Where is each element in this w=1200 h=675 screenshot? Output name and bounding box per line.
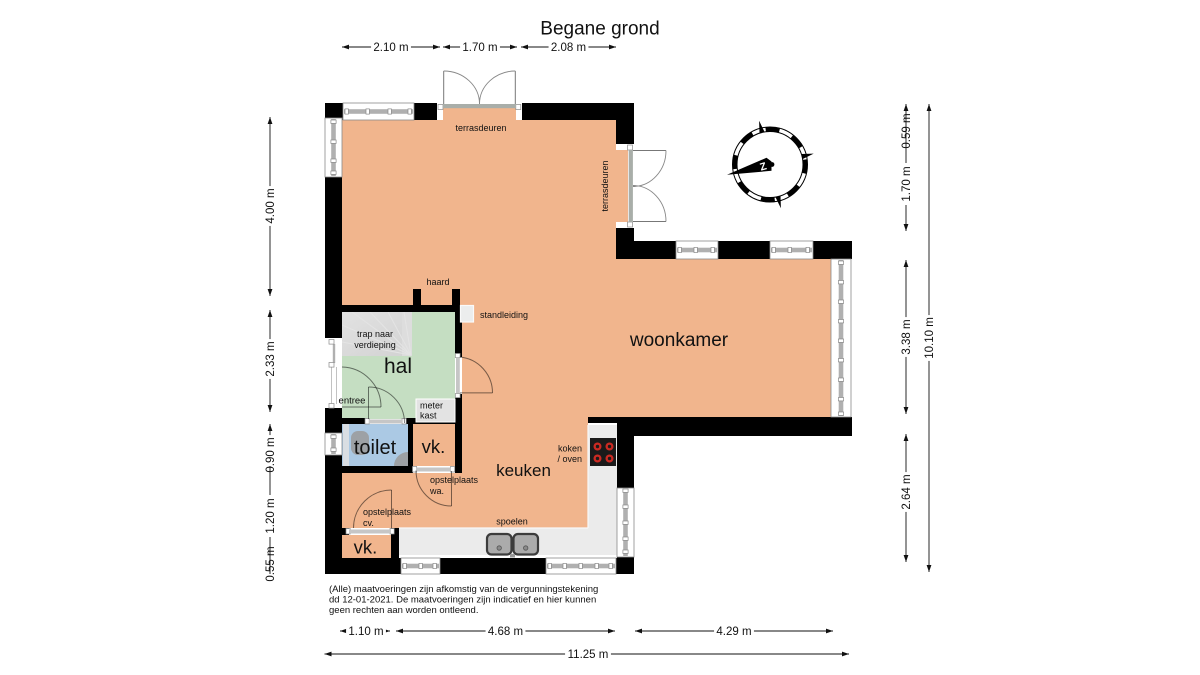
- svg-text:trap naar: trap naar: [357, 329, 393, 339]
- svg-text:verdieping: verdieping: [354, 340, 396, 350]
- svg-text:terrasdeuren: terrasdeuren: [455, 123, 506, 133]
- svg-text:0.90 m: 0.90 m: [265, 437, 277, 472]
- svg-text:woonkamer: woonkamer: [629, 330, 729, 351]
- svg-text:wa.: wa.: [429, 486, 444, 496]
- svg-text:entree: entree: [339, 396, 366, 407]
- svg-text:vk.: vk.: [422, 436, 446, 457]
- svg-text:1.20 m: 1.20 m: [265, 498, 277, 533]
- svg-text:3.38 m: 3.38 m: [901, 319, 913, 354]
- svg-text:1.10 m: 1.10 m: [348, 626, 383, 638]
- svg-text:spoelen: spoelen: [496, 517, 528, 527]
- svg-text:koken: koken: [558, 444, 582, 454]
- svg-text:cv.: cv.: [363, 518, 374, 528]
- svg-text:(Alle) maatvoeringen zijn afko: (Alle) maatvoeringen zijn afkomstig van …: [329, 584, 598, 595]
- svg-text:keuken: keuken: [496, 461, 551, 480]
- svg-text:4.68 m: 4.68 m: [488, 626, 523, 638]
- svg-text:4.29 m: 4.29 m: [716, 626, 751, 638]
- svg-text:standleiding: standleiding: [480, 310, 528, 320]
- svg-text:opstelplaats: opstelplaats: [430, 475, 479, 485]
- svg-text:Begane grond: Begane grond: [540, 19, 659, 40]
- svg-text:geen rechten aan worden ontlee: geen rechten aan worden ontleend.: [329, 605, 478, 616]
- svg-text:vk.: vk.: [354, 537, 378, 558]
- svg-text:haard: haard: [426, 277, 449, 287]
- svg-text:meter: meter: [420, 401, 443, 411]
- svg-text:11.25 m: 11.25 m: [568, 649, 609, 661]
- svg-text:opstelplaats: opstelplaats: [363, 507, 412, 517]
- svg-text:2.64 m: 2.64 m: [901, 474, 913, 509]
- svg-text:1.70 m: 1.70 m: [901, 166, 913, 201]
- svg-text:dd 12-01-2021. De maatvoeringe: dd 12-01-2021. De maatvoeringen zijn ind…: [329, 595, 596, 606]
- svg-text:2.08 m: 2.08 m: [551, 42, 586, 54]
- svg-text:2.10 m: 2.10 m: [373, 42, 408, 54]
- svg-text:toilet: toilet: [354, 437, 397, 459]
- svg-text:terrasdeuren: terrasdeuren: [600, 160, 610, 211]
- svg-text:4.00 m: 4.00 m: [265, 188, 277, 223]
- svg-text:10.10 m: 10.10 m: [924, 317, 936, 359]
- svg-text:0.59 m: 0.59 m: [901, 113, 913, 148]
- svg-text:0.55 m: 0.55 m: [265, 546, 277, 581]
- svg-text:2.33 m: 2.33 m: [265, 341, 277, 376]
- svg-text:1.70 m: 1.70 m: [462, 42, 497, 54]
- svg-text:hal: hal: [384, 355, 412, 378]
- svg-text:/ oven: / oven: [557, 454, 582, 464]
- svg-text:kast: kast: [420, 411, 437, 421]
